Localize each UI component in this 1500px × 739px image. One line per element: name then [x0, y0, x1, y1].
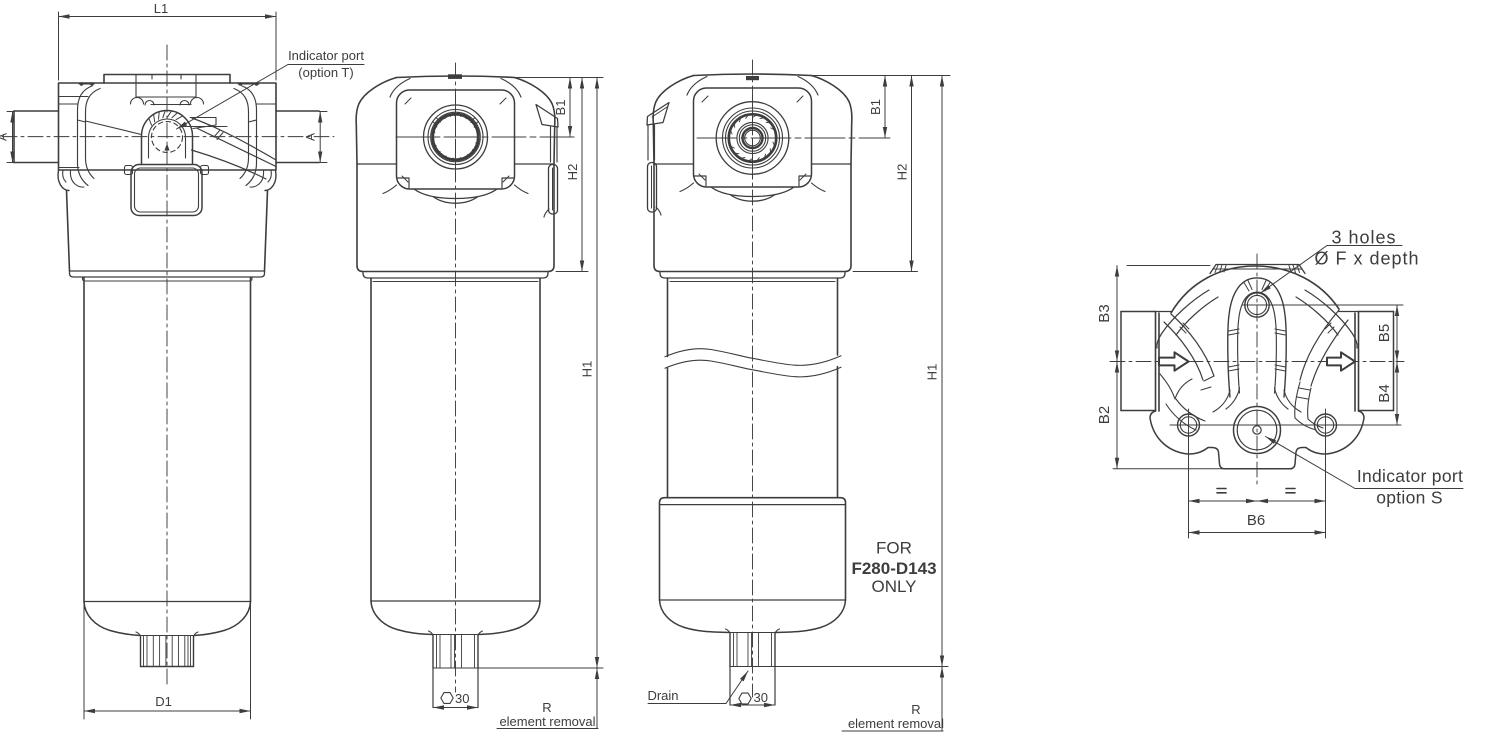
svg-text:B4: B4	[1376, 384, 1393, 402]
svg-text:L1: L1	[154, 1, 168, 16]
svg-text:B1: B1	[553, 100, 568, 116]
svg-text:H2: H2	[895, 164, 910, 181]
svg-text:30: 30	[455, 691, 469, 706]
svg-text:Drain: Drain	[647, 688, 678, 703]
svg-text:option S: option S	[1376, 488, 1443, 508]
svg-text:element removal: element removal	[848, 716, 944, 731]
svg-text:Indicator port: Indicator port	[288, 48, 364, 63]
svg-text:F280-D143: F280-D143	[851, 559, 936, 578]
svg-text:ONLY: ONLY	[871, 577, 916, 596]
svg-text:B2: B2	[1096, 406, 1113, 424]
svg-text:R: R	[911, 702, 920, 717]
svg-text:30: 30	[754, 690, 768, 705]
svg-text:B6: B6	[1247, 512, 1265, 529]
svg-text:FOR: FOR	[876, 539, 912, 558]
svg-text:Indicator port: Indicator port	[1357, 466, 1463, 486]
svg-text:D1: D1	[155, 694, 172, 709]
svg-text:R: R	[542, 700, 551, 715]
svg-text:B3: B3	[1096, 304, 1113, 322]
svg-text:B1: B1	[868, 99, 883, 115]
svg-text:H1: H1	[580, 361, 595, 378]
svg-text:H1: H1	[925, 364, 940, 381]
svg-text:B5: B5	[1376, 324, 1393, 342]
svg-text:(option T): (option T)	[298, 65, 353, 80]
svg-text:Ø F x depth: Ø F x depth	[1314, 249, 1419, 269]
svg-text:H2: H2	[565, 164, 580, 181]
svg-text:3 holes: 3 holes	[1331, 228, 1396, 248]
svg-text:element removal: element removal	[499, 714, 595, 729]
